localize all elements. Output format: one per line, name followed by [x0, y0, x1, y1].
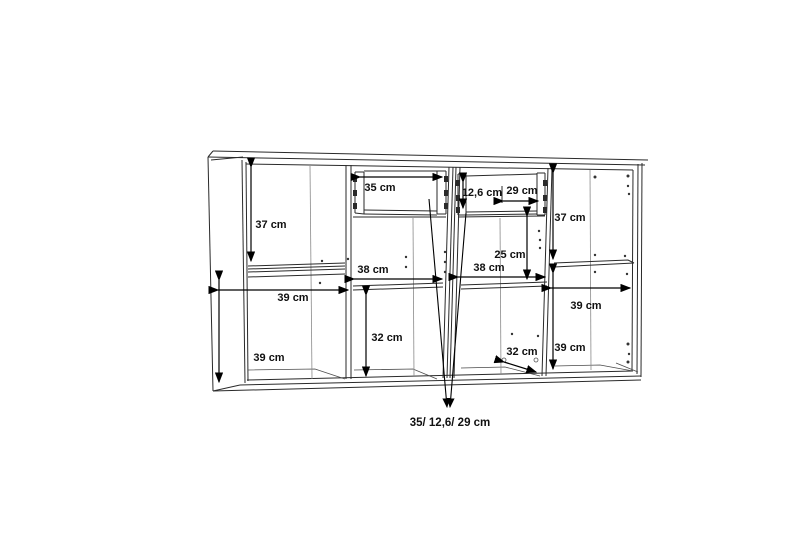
dim-mid-right-bottom-depth: 32 cm: [506, 346, 537, 358]
dim-left-bottom-height: 39 cm: [253, 352, 284, 364]
drawer-left: [353, 171, 446, 217]
dim-mid-right-width: 38 cm: [473, 262, 504, 274]
dimension-drawing-page: 37 cm 35 cm 12,6 cm 29 cm 37 cm 25 cm 38…: [0, 0, 800, 533]
dim-mid-right-mid-height: 25 cm: [494, 249, 525, 261]
dim-right-bottom-height: 39 cm: [554, 342, 585, 354]
dim-right-top-height: 37 cm: [554, 212, 585, 224]
drawers-dimension-note: 35/ 12,6/ 29 cm: [410, 417, 491, 429]
dim-left-top-height: 37 cm: [255, 219, 286, 231]
dim-right-shelf-width: 39 cm: [570, 300, 601, 312]
dim-left-shelf-width: 39 cm: [277, 292, 308, 304]
dim-drawer-right-width: 29 cm: [506, 185, 537, 197]
dim-drawer-left-width: 35 cm: [364, 182, 395, 194]
dim-mid-left-bottom-height: 32 cm: [371, 332, 402, 344]
dim-drawer-right-height: 12,6 cm: [462, 187, 502, 199]
dim-mid-left-width: 38 cm: [357, 264, 388, 276]
cabinet-line-drawing: [0, 0, 800, 533]
